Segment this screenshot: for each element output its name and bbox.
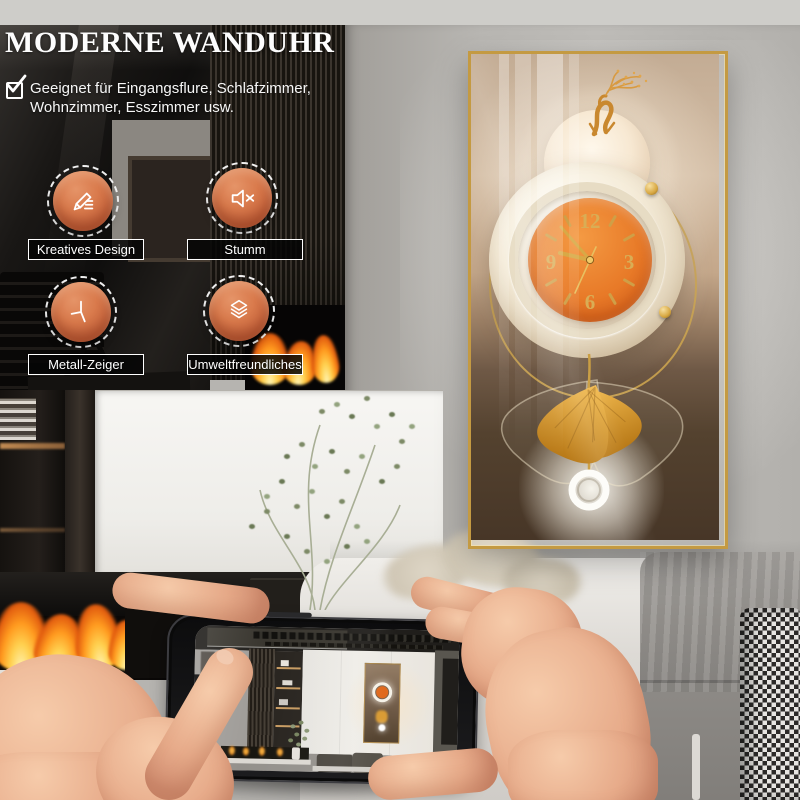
- suitability-line-2: Wohnzimmer, Esszimmer usw.: [30, 98, 350, 117]
- houndstooth-blanket: [740, 608, 800, 800]
- feature-label: Kreatives Design: [28, 239, 144, 260]
- feature-badge-kreatives-design: [47, 165, 119, 237]
- wood-column: [65, 390, 95, 575]
- painting-inner: 12 3 6 9: [471, 54, 719, 540]
- checkbox-check-icon: [5, 74, 27, 94]
- plant-branches: [225, 385, 435, 610]
- phone-button: [268, 612, 312, 618]
- layers-icon: [224, 296, 254, 326]
- clock-hands-icon: [66, 297, 96, 327]
- feature-label: Stumm: [187, 239, 303, 260]
- bookshelf: [0, 390, 65, 575]
- feature-label: Metall-Zeiger: [28, 354, 144, 375]
- feature-badge-umweltfreundliches: [203, 275, 275, 347]
- suitability-text: Geeignet für Eingangsflure, Schlafzimmer…: [30, 79, 350, 117]
- suitability-line-1: Geeignet für Eingangsflure, Schlafzimmer…: [30, 79, 350, 98]
- page-title: MODERNE WANDUHR: [5, 26, 334, 60]
- ceiling: [0, 0, 800, 28]
- speaker-mute-icon: [227, 183, 257, 213]
- clock-painting: 12 3 6 9: [468, 51, 728, 549]
- cushion-piping: [692, 734, 700, 800]
- books: [0, 398, 36, 440]
- pencil-icon: [68, 186, 98, 216]
- feature-label: Umweltfreundliches: [187, 354, 303, 375]
- product-image: 12 3 6 9: [0, 0, 800, 800]
- feature-badge-stumm: [206, 162, 278, 234]
- feature-badge-metall-zeiger: [45, 276, 117, 348]
